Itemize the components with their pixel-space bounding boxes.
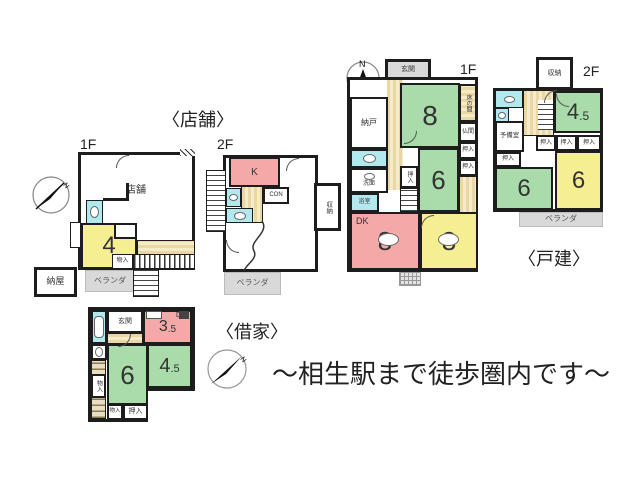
shop-floor-room: 店舗 (126, 181, 146, 196)
house-shunou-left: 収納 (314, 183, 341, 231)
shop-monoire-stairs: 物入 (112, 254, 133, 269)
light-icon (438, 233, 459, 246)
washbasin-icon (504, 96, 515, 103)
house-tokonoma: 床の間 (459, 84, 477, 122)
toilet-icon (363, 154, 376, 163)
washbasin-icon (364, 173, 375, 180)
rental-bath (91, 310, 107, 344)
house-2f-label: 2F (583, 63, 599, 79)
interior-wall (126, 183, 129, 201)
house-title: 〈戸建〉 (518, 245, 590, 271)
shop-kitchen: K (229, 157, 280, 187)
shop-washroom (226, 188, 241, 207)
house-2f-shunou: 収納 (536, 57, 573, 90)
light-icon (378, 233, 399, 246)
shop-1f-label: 1F (80, 136, 96, 152)
north-icon: N (359, 59, 366, 69)
house-2f-veranda: ベランダ (519, 212, 603, 227)
sink-icon (146, 311, 162, 319)
house-nando: 納戸 (350, 97, 388, 149)
house-1f-stairs (400, 188, 418, 212)
washbasin-icon (229, 194, 238, 201)
house-1f-label: 1F (460, 61, 476, 77)
shop-engawa (137, 240, 195, 255)
house-2f-oshiire-c: 押入 (577, 135, 601, 151)
rental-room-45: 4.5 (147, 344, 192, 388)
house-dk-label: DK (356, 216, 369, 226)
house-2f-oshiire-d: 押入 (495, 152, 521, 167)
opening-hatch (180, 149, 195, 156)
house-oshiire-b: 押入 (459, 159, 477, 176)
rental-monoire-bottom: 物入 (107, 404, 123, 420)
entry-step (399, 272, 421, 286)
compass-rental: N (205, 346, 249, 392)
rental-oshiire: 押入 (123, 404, 148, 420)
shop-monoire-left (70, 222, 81, 248)
stove-icon (179, 311, 189, 319)
house-1f-toilet (350, 149, 388, 168)
house-oshiire-c: 押入 (400, 166, 418, 188)
compass-shop: N (30, 172, 72, 218)
toilet-icon (90, 206, 99, 218)
rental-wall-right (192, 307, 195, 391)
house-yobishitsu: 予備室 (495, 121, 524, 152)
house-2f-oshiire-a: 押入 (536, 135, 556, 151)
stairs-treads (538, 100, 553, 130)
partition-curve (238, 219, 272, 273)
shop-2f-stairs (206, 170, 226, 232)
shop-naya: 納屋 (34, 267, 77, 297)
house-2f-oshiire-b: 押入 (556, 135, 577, 151)
house-yokushitsu: 浴室 (350, 193, 379, 212)
shop-title: 〈店舗〉 (162, 106, 234, 132)
rental-toilet (91, 344, 107, 360)
toilet-icon (498, 112, 506, 119)
shop-2f-label: 2F (217, 136, 233, 152)
north-icon: N (238, 356, 247, 364)
floorplan-sheet: 〈店舗〉 1F 2F 1F 2F 〈戸建〉 〈借家〉 〜相生駅まで徒歩圏内です〜… (0, 0, 640, 480)
shop-closet (114, 223, 137, 239)
shop-2f-con-box: CON (263, 187, 289, 204)
shop-toilet (86, 200, 103, 224)
house-senmen: 洗面 (350, 168, 388, 193)
shop-veranda-2f: ベランダ (224, 272, 281, 295)
shop-stairs (133, 254, 195, 269)
rental-wall-bottom-right (145, 388, 195, 391)
house-2f-washroom (495, 90, 523, 108)
house-butsuma: 仏間 (459, 122, 477, 142)
north-icon: N (61, 182, 70, 190)
catch-copy: 〜相生駅まで徒歩圏内です〜 (272, 354, 610, 391)
house-room-6: 6 (418, 148, 459, 212)
rental-title: 〈借家〉 (216, 318, 288, 344)
toilet-icon (95, 347, 103, 357)
bathtub-icon (94, 316, 104, 338)
shop-veranda-1f: ベランダ (85, 270, 135, 292)
rental-monoire-side: 物入 (91, 374, 106, 398)
house-2f-room-6a: 6 (495, 167, 553, 210)
rental-room-6: 6 (107, 344, 148, 405)
house-oshiire-a: 押入 (459, 142, 477, 159)
rental-genkan: 玄関 (107, 310, 143, 333)
house-2f-room-6b: 6 (555, 151, 602, 210)
shop-outside-stairs (133, 269, 159, 297)
